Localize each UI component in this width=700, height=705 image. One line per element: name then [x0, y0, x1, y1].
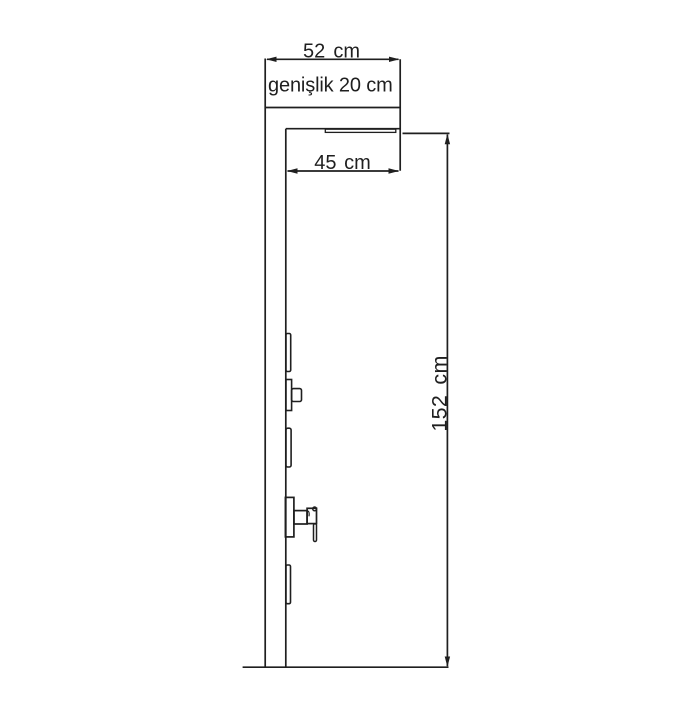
svg-text:genişlik 20 cm: genişlik 20 cm [268, 75, 393, 97]
svg-text:52 cm: 52 cm [303, 40, 360, 62]
svg-text:45 cm: 45 cm [314, 152, 370, 174]
svg-text:152 cm: 152 cm [427, 355, 451, 431]
